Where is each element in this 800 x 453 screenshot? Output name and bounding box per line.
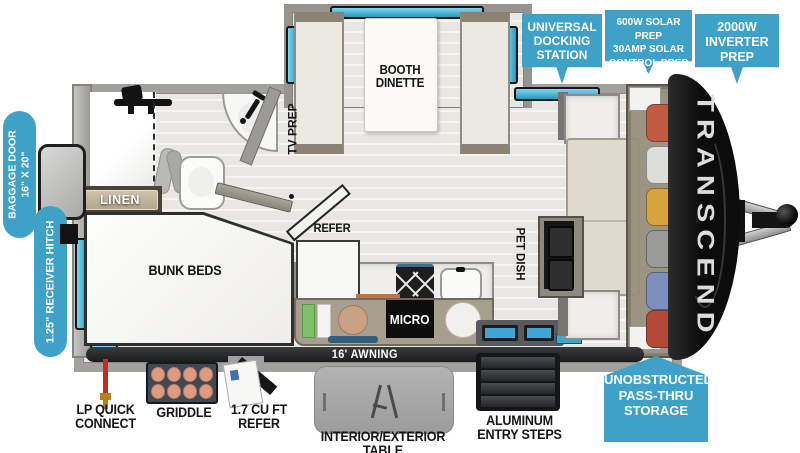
booth-dinette-label: BOOTH DINETTE bbox=[355, 64, 444, 91]
lp-quick-connect-label: LP QUICK CONNECT bbox=[61, 403, 149, 432]
interior-exterior-table bbox=[314, 366, 454, 434]
callout-universal-docking: UNIVERSAL DOCKING STATION bbox=[522, 14, 602, 84]
burner-icon bbox=[399, 270, 412, 298]
tongue-jack bbox=[776, 204, 798, 226]
nightstand-top bbox=[564, 94, 620, 144]
pet-dish-label: PET DISH bbox=[514, 227, 526, 280]
mini-refer-label: 1.7 CU FT REFER bbox=[217, 403, 301, 432]
griddle bbox=[146, 362, 218, 404]
entry-mat bbox=[482, 325, 518, 341]
lp-fitting-icon bbox=[100, 393, 111, 400]
awning-label: 16' AWNING bbox=[332, 349, 398, 361]
table-hinge-icon bbox=[442, 393, 445, 411]
brand-name: TRANSCEND bbox=[690, 94, 718, 340]
lp-hose-icon bbox=[103, 359, 108, 395]
kitchen-sink bbox=[440, 268, 482, 302]
step-tread bbox=[481, 357, 555, 368]
entry-steps-label: ALUMINUM ENTRY STEPS bbox=[475, 414, 563, 443]
cutting-board bbox=[302, 304, 315, 338]
bunk-beds-label: BUNK BEDS bbox=[125, 264, 246, 278]
micro-label: MICRO bbox=[390, 312, 430, 327]
callout-baggage-door: BAGGAGE DOOR 16" X 20" bbox=[3, 111, 36, 238]
bunk-beds bbox=[87, 215, 291, 343]
stove-cooktop bbox=[396, 264, 434, 301]
cabinet-accent bbox=[328, 336, 378, 343]
linen-label-plate: LINEN bbox=[82, 190, 158, 210]
receiver-hitch bbox=[60, 224, 78, 244]
tv-prep-label: TV PREP bbox=[286, 103, 300, 154]
microwave: MICRO bbox=[386, 300, 434, 338]
burner-icon bbox=[418, 270, 431, 298]
drain-icon bbox=[240, 118, 246, 124]
griddle-patty bbox=[151, 367, 165, 382]
rv-floorplan: BOOTH DINETTE LINEN TV PREP BUNK BEDS RE… bbox=[0, 0, 800, 453]
awning-bar: 16' AWNING bbox=[86, 347, 644, 362]
table-leg-icon bbox=[371, 385, 382, 419]
entry-steps bbox=[476, 353, 560, 411]
table-hinge-icon bbox=[323, 393, 326, 411]
table-leg-icon bbox=[387, 385, 398, 419]
plate bbox=[338, 305, 368, 335]
pet-dish-area: PET DISH bbox=[506, 214, 534, 294]
linen-label: LINEN bbox=[100, 193, 140, 207]
entry-mat bbox=[524, 325, 554, 341]
griddle-label: GRIDDLE bbox=[149, 406, 220, 420]
brand-badge: TRANSCEND bbox=[668, 74, 740, 360]
table-label: INTERIOR/EXTERIOR TABLE bbox=[302, 430, 464, 453]
dinette-bench-right bbox=[460, 12, 510, 154]
towel-roll bbox=[317, 304, 331, 338]
pet-bowl bbox=[548, 259, 574, 291]
callout-solar-prep: 600W SOLAR PREP 30AMP SOLAR CONTROL PREP bbox=[605, 10, 692, 74]
pet-bowl bbox=[548, 226, 574, 258]
refrigerator bbox=[296, 240, 360, 304]
shower bbox=[90, 92, 156, 192]
tv-prep-area: TV PREP bbox=[280, 96, 306, 162]
shower-foot-icon bbox=[128, 106, 134, 114]
door-handle-icon bbox=[289, 194, 294, 199]
